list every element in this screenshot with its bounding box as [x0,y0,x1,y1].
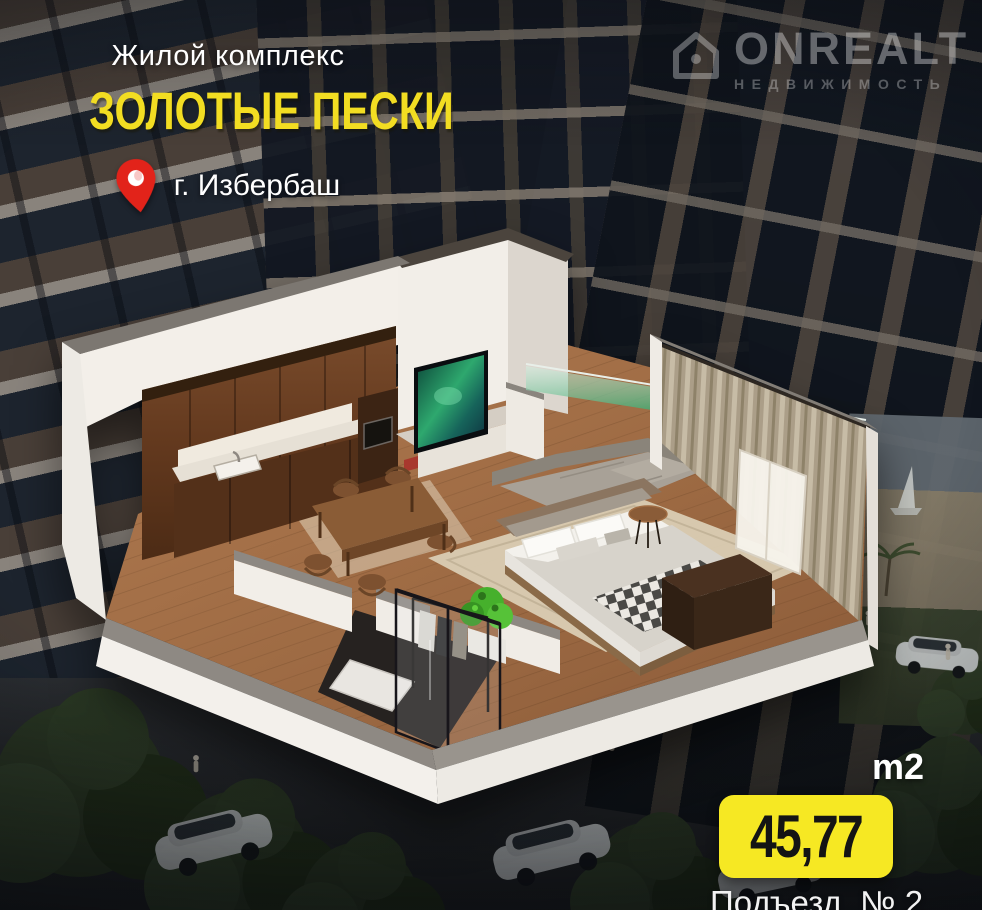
entrance-label: Подъезд № 2 [710,884,923,910]
complex-subtitle: Жилой комплекс [50,40,406,73]
watermark-text: ONREALT НЕДВИЖИМОСТЬ [734,26,969,92]
brand-tagline: НЕДВИЖИМОСТЬ [734,76,969,92]
complex-title: ЗОЛОТЫЕ ПЕСКИ [89,81,367,142]
area-badge: 45,77 [719,795,893,878]
brand-name: ONREALT [734,26,969,71]
onrealt-house-icon [668,26,724,84]
area-unit-label: m2 [872,746,924,788]
area-value: 45,77 [750,802,862,871]
flyer: Жилой комплекс ЗОЛОТЫЕ ПЕСКИ г. Избербаш… [0,0,982,910]
watermark: ONREALT НЕДВИЖИМОСТЬ [668,26,969,92]
location-row: г. Избербаш [50,158,406,214]
location-pin-icon [112,155,161,216]
header: Жилой комплекс ЗОЛОТЫЕ ПЕСКИ г. Избербаш [50,40,406,214]
city-label: г. Избербаш [174,169,340,203]
